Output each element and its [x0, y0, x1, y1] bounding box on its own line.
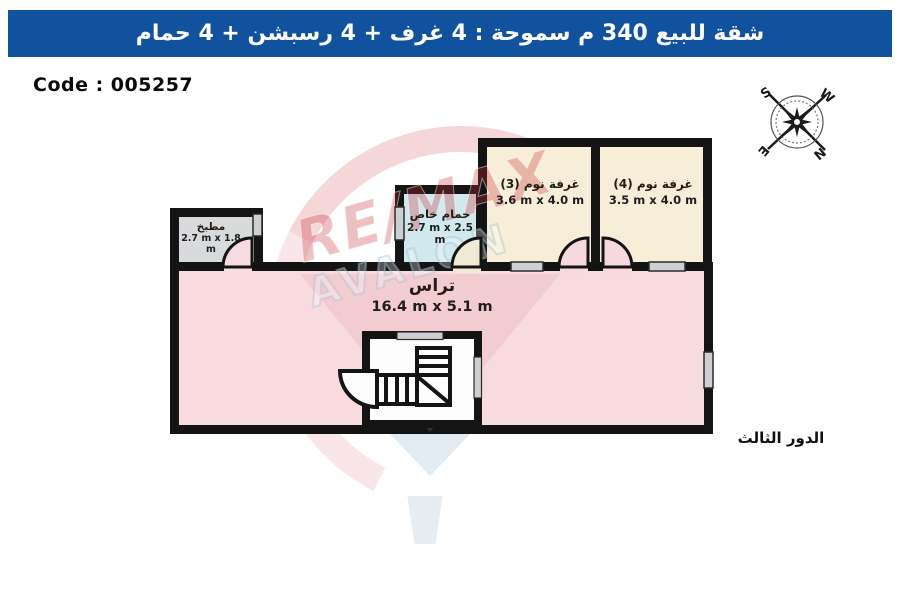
- compass-star: [780, 105, 814, 139]
- balloon-watermark-tip: [388, 432, 472, 476]
- kitchen-dimensions: 2.7 m x 1.8 m: [178, 233, 244, 255]
- compass-letter-e: E: [754, 142, 771, 158]
- floorplan-canvas: شقة للبيع 340 م سموحة : 4 غرف + 4 رسبشن …: [0, 0, 900, 599]
- balloon-watermark-basket: [403, 496, 447, 544]
- kitchen-name: مطبخ: [178, 221, 244, 233]
- listing-code: Code : 005257: [33, 74, 193, 96]
- label-bedroom-4: غرفة نوم (4) 3.5 m x 4.0 m: [608, 177, 698, 207]
- floor-label: الدور الثالث: [706, 429, 856, 447]
- bedroom4-name: غرفة نوم (4): [608, 177, 698, 191]
- bedroom3-name: غرفة نوم (3): [495, 177, 585, 191]
- bathroom-name: حمام خاص: [400, 207, 480, 221]
- compass-letter-s: S: [758, 85, 774, 103]
- compass-rose: S W E N: [754, 85, 837, 163]
- compass-hub: [794, 119, 801, 126]
- terrace-dimensions: 16.4 m x 5.1 m: [371, 299, 493, 315]
- compass-ring: [771, 96, 823, 148]
- label-terrace: تراس 16.4 m x 5.1 m: [371, 276, 493, 315]
- terrace-name: تراس: [371, 276, 493, 296]
- compass-letter-w: W: [816, 86, 837, 107]
- bathroom-dimensions: 2.7 m x 2.5 m: [400, 222, 480, 246]
- compass-needle: [768, 95, 826, 149]
- label-bathroom: حمام خاص 2.7 m x 2.5 m: [400, 207, 480, 246]
- compass-needle: [769, 94, 825, 150]
- listing-title: شقة للبيع 340 م سموحة : 4 غرف + 4 رسبشن …: [136, 21, 764, 46]
- bedroom3-dimensions: 3.6 m x 4.0 m: [495, 193, 585, 207]
- compass-letter-n: N: [810, 144, 828, 162]
- label-kitchen: مطبخ 2.7 m x 1.8 m: [178, 221, 244, 255]
- listing-title-bar: شقة للبيع 340 م سموحة : 4 غرف + 4 رسبشن …: [8, 10, 892, 57]
- label-bedroom-3: غرفة نوم (3) 3.6 m x 4.0 m: [495, 177, 585, 207]
- bedroom4-dimensions: 3.5 m x 4.0 m: [608, 193, 698, 207]
- compass-ring-dashed: [776, 101, 818, 143]
